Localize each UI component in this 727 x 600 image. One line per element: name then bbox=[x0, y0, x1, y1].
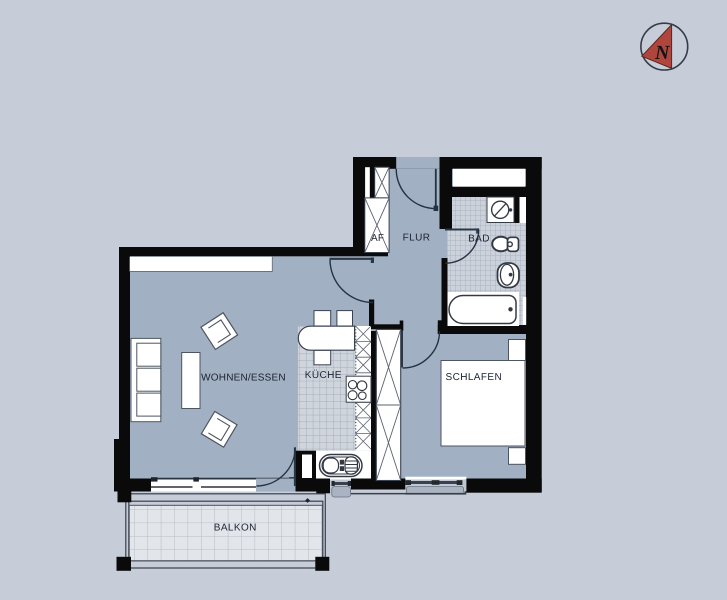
svg-text:N: N bbox=[654, 42, 671, 64]
svg-text:AF: AF bbox=[371, 233, 384, 244]
svg-text:FLUR: FLUR bbox=[403, 233, 431, 244]
svg-text:SCHLAFEN: SCHLAFEN bbox=[446, 372, 503, 383]
svg-text:BALKON: BALKON bbox=[214, 523, 257, 534]
svg-text:WOHNEN/ESSEN: WOHNEN/ESSEN bbox=[201, 373, 286, 384]
svg-text:BAD: BAD bbox=[468, 234, 490, 245]
svg-text:KÜCHE: KÜCHE bbox=[305, 369, 342, 381]
